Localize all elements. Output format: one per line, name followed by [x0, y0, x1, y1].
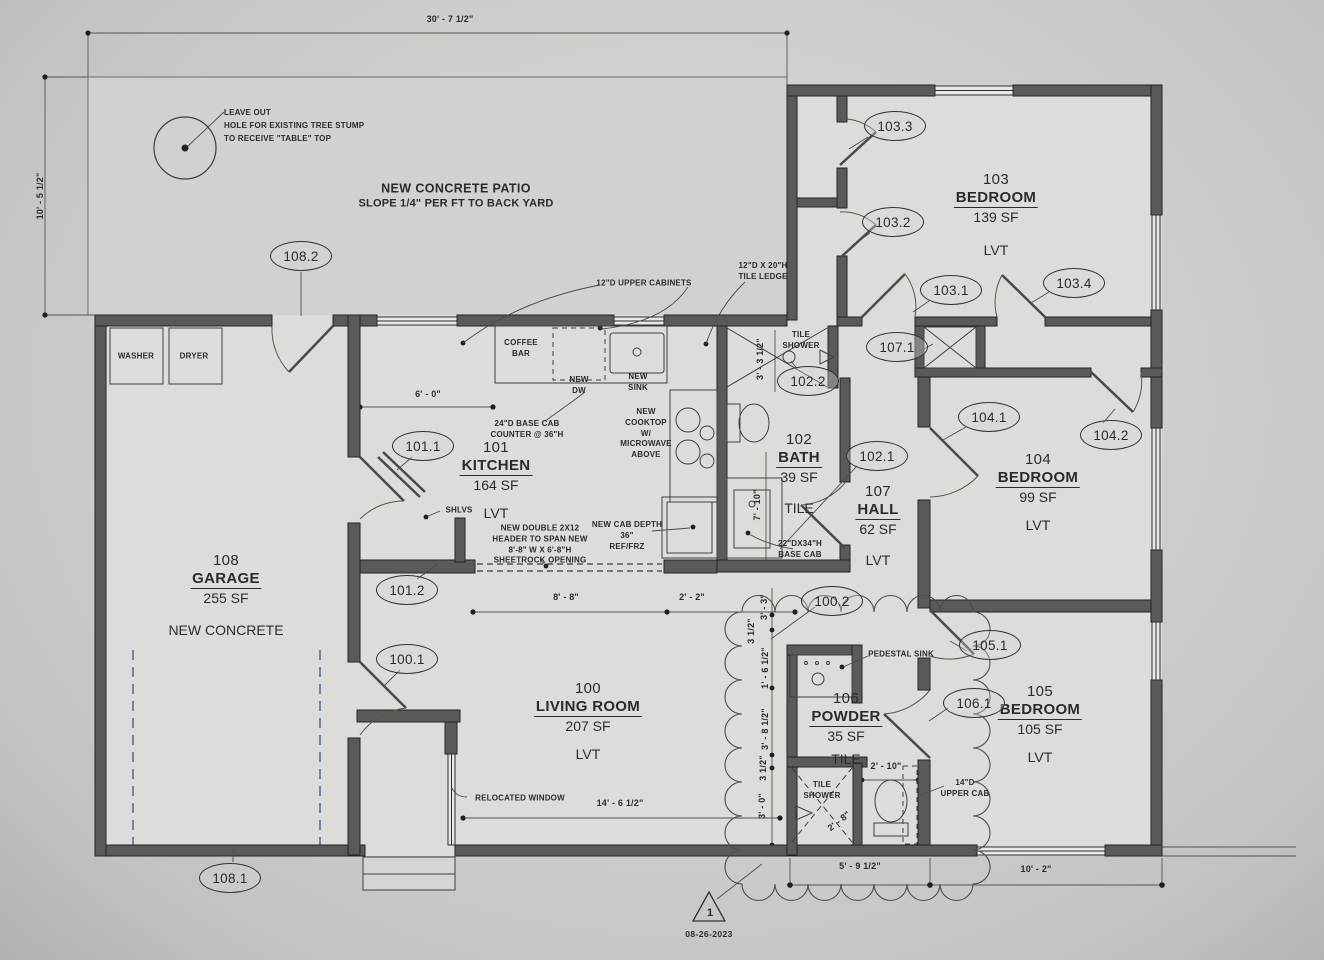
note-new-sink: NEW SINK	[628, 372, 648, 394]
note-upper-cab-powder: 14"D UPPER CAB	[941, 778, 990, 800]
room-name: BEDROOM	[996, 470, 1080, 489]
note-patio-title: NEW CONCRETE PATIO	[381, 181, 531, 198]
callout-label: 108.2	[283, 249, 318, 264]
note-pedestal-sink: PEDESTAL SINK	[868, 650, 934, 661]
room-area: 139 SF	[954, 210, 1038, 225]
room-label-bedroom-103: 103 BEDROOM 139 SF LVT	[954, 172, 1038, 259]
dim-chain-4: 3' - 8 1/2"	[760, 708, 770, 750]
callout-label: 101.2	[389, 583, 424, 598]
callout-104-2: 104.2	[1080, 420, 1142, 450]
dim-shower-width: 3' - 3 1/2"	[755, 338, 765, 380]
note-22-base-cab: 22"DX34"H BASE CAB	[778, 539, 822, 561]
room-area: 39 SF	[776, 470, 822, 485]
room-name: LIVING ROOM	[534, 699, 642, 718]
callout-107-1: 107.1	[866, 332, 928, 362]
room-finish: LVT	[954, 243, 1038, 258]
note-upper-cabinets: 12"D UPPER CABINETS	[596, 279, 691, 290]
dim-overall-width: 30' - 7 1/2"	[427, 14, 474, 24]
dim-powder-width: 5' - 9 1/2"	[839, 861, 881, 871]
room-finish: TILE	[776, 501, 822, 516]
room-label-bedroom-104: 104 BEDROOM 99 SF LVT	[996, 452, 1080, 534]
callout-101-2: 101.2	[376, 575, 438, 605]
room-label-garage: 108 GARAGE 255 SF NEW CONCRETE	[168, 553, 283, 639]
callout-label: 101.1	[405, 439, 440, 454]
note-new-dw: NEW DW	[569, 375, 588, 397]
note-header: NEW DOUBLE 2X12 HEADER TO SPAN NEW 8'-8"…	[492, 523, 587, 566]
room-label-hall: 107 HALL 62 SF LVT	[855, 484, 900, 569]
room-number: 101	[460, 440, 533, 457]
label-washer: WASHER	[118, 352, 154, 363]
dim-chain-5: 3 1/2"	[758, 755, 768, 780]
dim-chain-2: 3 1/2"	[746, 618, 756, 643]
label-dryer: DRYER	[180, 352, 209, 363]
room-number: 104	[996, 452, 1080, 469]
callout-label: 104.2	[1093, 428, 1128, 443]
room-area: 99 SF	[996, 490, 1080, 505]
dim-wc-width: 2' - 10"	[870, 761, 901, 771]
callout-108-2: 108.2	[270, 241, 332, 271]
detail-marker-date: 08-26-2023	[685, 929, 732, 939]
callout-label: 104.1	[971, 410, 1006, 425]
floor-plan-sheet: 100 LIVING ROOM 207 SF LVT 101 KITCHEN 1…	[0, 0, 1324, 960]
note-relocated-window: RELOCATED WINDOW	[475, 794, 565, 805]
room-name: BEDROOM	[998, 702, 1082, 721]
callout-101-1: 101.1	[392, 431, 454, 461]
note-tree-stump: LEAVE OUT HOLE FOR EXISTING TREE STUMP T…	[224, 106, 364, 146]
room-label-living-room: 100 LIVING ROOM 207 SF LVT	[534, 681, 642, 763]
room-finish: LVT	[534, 747, 642, 762]
callout-label: 102.2	[790, 374, 825, 389]
dim-bedroom105-width: 10' - 2"	[1020, 864, 1051, 874]
callout-100-2: 100.2	[801, 586, 863, 616]
room-name: BEDROOM	[954, 190, 1038, 209]
note-ref-frz: NEW CAB DEPTH 36" REF/FRZ	[592, 520, 662, 552]
note-shlvs: SHLVS	[445, 506, 472, 517]
callout-label: 100.1	[389, 652, 424, 667]
callout-106-1: 106.1	[943, 688, 1005, 718]
room-area: 105 SF	[998, 722, 1082, 737]
room-area: 164 SF	[460, 478, 533, 493]
room-number: 107	[855, 484, 900, 501]
callout-108-1: 108.1	[199, 863, 261, 893]
callout-label: 103.1	[933, 283, 968, 298]
room-area: 255 SF	[168, 591, 283, 606]
room-label-powder: 106 POWDER 35 SF TILE	[809, 691, 882, 768]
callout-103-2: 103.2	[862, 207, 924, 237]
note-base-cab: 24"D BASE CAB COUNTER @ 36"H	[490, 419, 563, 441]
note-coffee-bar: COFFEE BAR	[504, 338, 538, 360]
room-number: 100	[534, 681, 642, 698]
callout-label: 103.2	[875, 215, 910, 230]
dim-kitchen-run: 6' - 0"	[415, 389, 441, 399]
dim-bath-depth: 7' - 10"	[752, 489, 762, 520]
dim-wall-segment: 2' - 2"	[679, 592, 705, 602]
room-area: 35 SF	[809, 729, 882, 744]
callout-label: 106.1	[956, 696, 991, 711]
room-area: 62 SF	[855, 522, 900, 537]
dim-chain-1: 3' - 3"	[759, 594, 769, 620]
room-finish: LVT	[998, 750, 1082, 765]
room-label-bath: 102 BATH 39 SF TILE	[776, 432, 822, 517]
callout-102-2: 102.2	[777, 366, 839, 396]
note-tile-shower-bath: TILE SHOWER	[782, 330, 819, 352]
callout-105-1: 105.1	[959, 630, 1021, 660]
note-patio-slope: SLOPE 1/4" PER FT TO BACK YARD	[359, 197, 554, 212]
callout-label: 102.1	[859, 449, 894, 464]
room-number: 102	[776, 432, 822, 449]
dim-chain-6: 3' - 0"	[757, 793, 767, 819]
callout-102-1: 102.1	[846, 441, 908, 471]
callout-label: 103.3	[877, 119, 912, 134]
callout-103-1: 103.1	[920, 275, 982, 305]
callout-label: 100.2	[814, 594, 849, 609]
dim-living-width: 14' - 6 1/2"	[597, 798, 644, 808]
room-name: KITCHEN	[460, 458, 533, 477]
dim-chain-3: 1' - 6 1/2"	[760, 647, 770, 689]
callout-label: 107.1	[879, 340, 914, 355]
room-name: POWDER	[809, 709, 882, 728]
callout-103-4: 103.4	[1043, 268, 1105, 298]
callout-103-3: 103.3	[864, 111, 926, 141]
detail-marker-number: 1	[707, 907, 713, 919]
dim-patio-depth: 10' - 5 1/2"	[35, 173, 45, 220]
callout-100-1: 100.1	[376, 644, 438, 674]
room-area: 207 SF	[534, 719, 642, 734]
callout-label: 108.1	[212, 871, 247, 886]
room-finish: LVT	[996, 518, 1080, 533]
plan-linework	[0, 0, 1324, 960]
dim-opening-width: 8' - 8"	[553, 592, 579, 602]
room-number: 108	[168, 553, 283, 570]
callout-label: 105.1	[972, 638, 1007, 653]
note-cooktop: NEW COOKTOP W/ MICROWAVE ABOVE	[620, 407, 671, 461]
room-label-bedroom-105: 105 BEDROOM 105 SF LVT	[998, 684, 1082, 766]
callout-label: 103.4	[1056, 276, 1091, 291]
room-number: 105	[998, 684, 1082, 701]
room-number: 103	[954, 172, 1038, 189]
room-name: HALL	[855, 502, 900, 521]
room-finish: LVT	[855, 553, 900, 568]
callout-104-1: 104.1	[958, 402, 1020, 432]
note-tile-shower-powder: TILE SHOWER	[803, 780, 840, 802]
room-finish: NEW CONCRETE	[168, 623, 283, 638]
note-tile-ledge: 12"D X 20"H TILE LEDGE	[738, 261, 787, 283]
room-name: GARAGE	[190, 571, 262, 590]
room-number: 106	[809, 691, 882, 708]
entry-step	[363, 857, 455, 874]
room-name: BATH	[776, 450, 822, 469]
